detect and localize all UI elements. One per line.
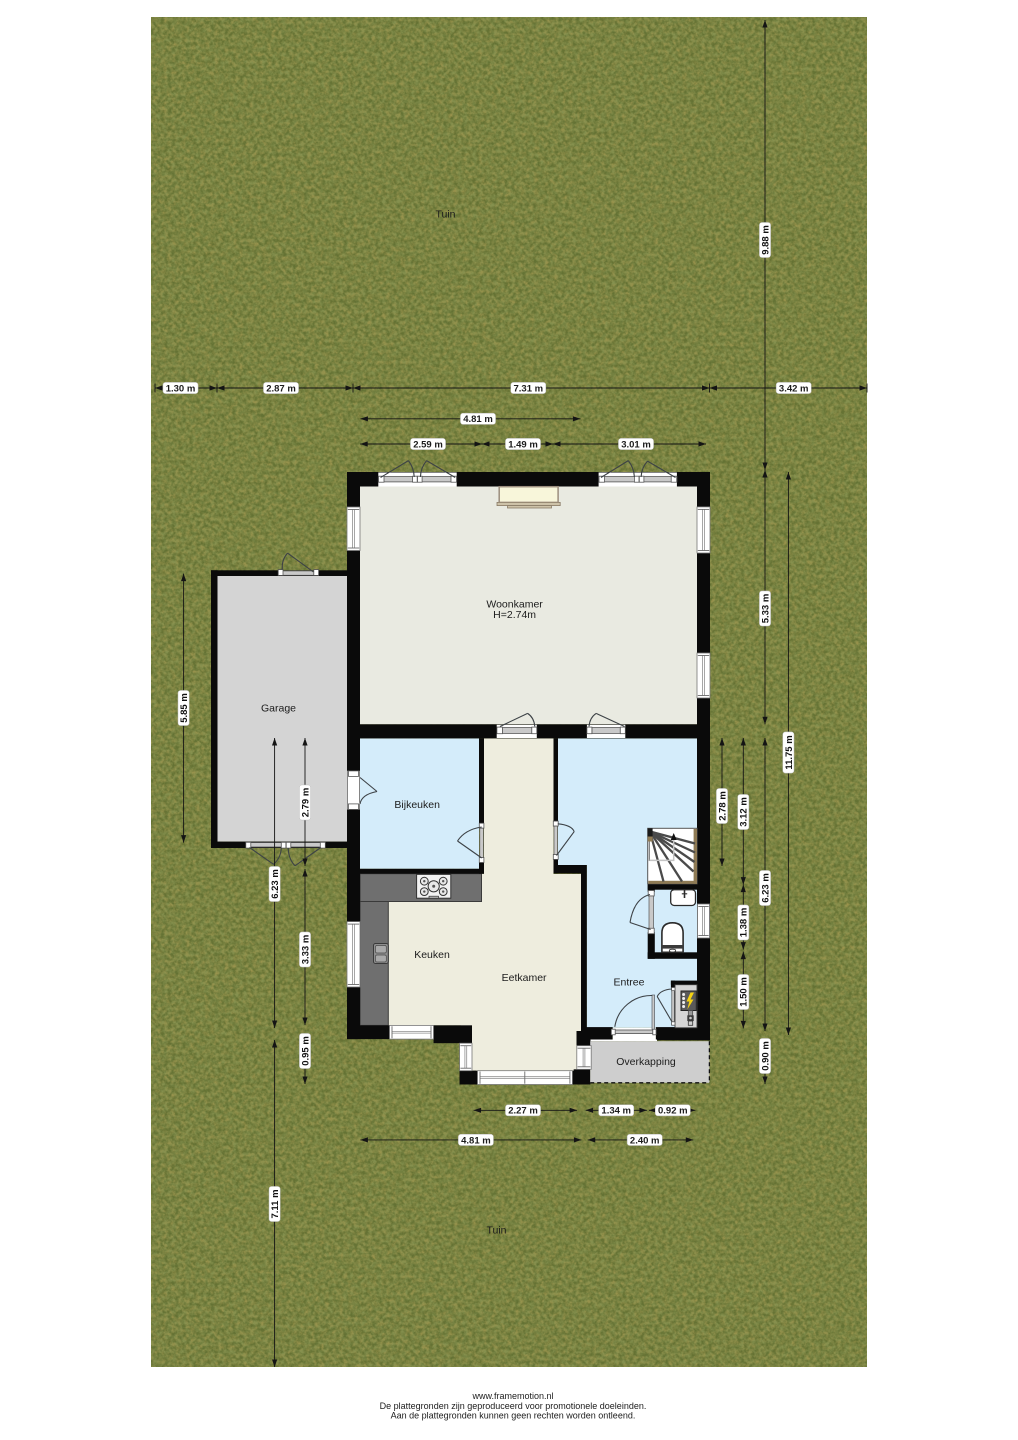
svg-text:3.42 m: 3.42 m [779, 383, 809, 394]
svg-text:2.27 m: 2.27 m [508, 1106, 538, 1117]
svg-text:Garage: Garage [261, 703, 296, 715]
svg-text:Entree: Entree [614, 977, 645, 989]
svg-text:7.11 m: 7.11 m [270, 1189, 281, 1218]
svg-text:4.81 m: 4.81 m [463, 414, 493, 425]
svg-text:1.30 m: 1.30 m [166, 383, 196, 394]
svg-text:7.31 m: 7.31 m [514, 383, 544, 394]
svg-text:9.88 m: 9.88 m [760, 225, 771, 255]
svg-text:2.59 m: 2.59 m [413, 439, 443, 450]
svg-text:0.92 m: 0.92 m [658, 1106, 688, 1117]
svg-text:0.95 m: 0.95 m [300, 1036, 311, 1066]
svg-text:6.23 m: 6.23 m [760, 873, 771, 903]
svg-text:0.90 m: 0.90 m [760, 1041, 771, 1071]
svg-text:3.12 m: 3.12 m [739, 797, 750, 827]
svg-text:6.23 m: 6.23 m [270, 869, 281, 899]
svg-text:1.49 m: 1.49 m [508, 439, 538, 450]
svg-text:Tuin: Tuin [435, 209, 455, 221]
svg-text:3.01 m: 3.01 m [621, 439, 651, 450]
svg-text:H=2.74m: H=2.74m [493, 609, 536, 621]
svg-text:5.85 m: 5.85 m [179, 693, 190, 723]
svg-text:De plattegronden zijn geproduc: De plattegronden zijn geproduceerd voor … [380, 1401, 647, 1411]
svg-text:2.40 m: 2.40 m [630, 1135, 660, 1146]
svg-text:Eetkamer: Eetkamer [502, 972, 547, 984]
svg-text:Bijkeuken: Bijkeuken [394, 799, 440, 811]
svg-text:Tuin: Tuin [486, 1225, 506, 1237]
svg-text:4.81 m: 4.81 m [461, 1135, 491, 1146]
svg-text:2.78 m: 2.78 m [717, 791, 728, 821]
svg-text:3.33 m: 3.33 m [300, 935, 311, 965]
svg-text:Keuken: Keuken [414, 949, 450, 961]
svg-text:Aan de plattegronden kunnen ge: Aan de plattegronden kunnen geen rechten… [391, 1411, 636, 1421]
svg-text:1.38 m: 1.38 m [739, 908, 750, 938]
svg-text:1.34 m: 1.34 m [601, 1106, 631, 1117]
svg-text:2.87 m: 2.87 m [266, 383, 296, 394]
svg-text:1.50 m: 1.50 m [739, 977, 750, 1007]
svg-text:11.75 m: 11.75 m [784, 735, 795, 769]
svg-text:2.79 m: 2.79 m [300, 788, 311, 818]
svg-text:www.framemotion.nl: www.framemotion.nl [471, 1391, 553, 1401]
svg-text:5.33 m: 5.33 m [760, 594, 771, 624]
svg-text:Overkapping: Overkapping [616, 1056, 676, 1068]
